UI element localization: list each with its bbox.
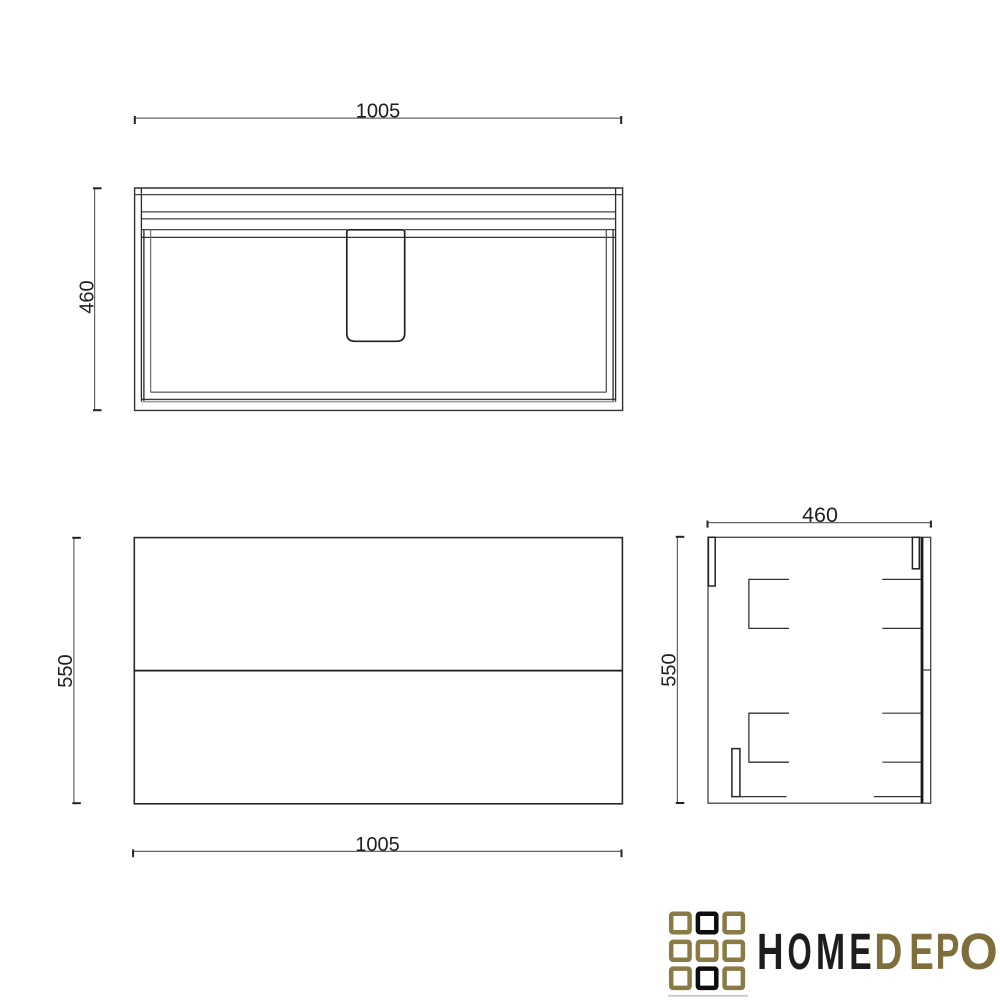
svg-text:460: 460 — [77, 280, 99, 313]
svg-text:1005: 1005 — [356, 101, 401, 123]
svg-text:550: 550 — [55, 654, 77, 687]
svg-text:460: 460 — [802, 503, 838, 527]
svg-text:O: O — [788, 923, 812, 980]
svg-text:550: 550 — [658, 653, 680, 686]
svg-text:M: M — [816, 924, 845, 981]
svg-text:D: D — [874, 923, 902, 980]
svg-text:H: H — [757, 924, 784, 980]
svg-text:E: E — [909, 924, 933, 980]
svg-text:1005: 1005 — [355, 834, 400, 856]
svg-text:P: P — [936, 924, 960, 981]
svg-text:O: O — [960, 923, 998, 980]
svg-text:E: E — [849, 924, 871, 981]
